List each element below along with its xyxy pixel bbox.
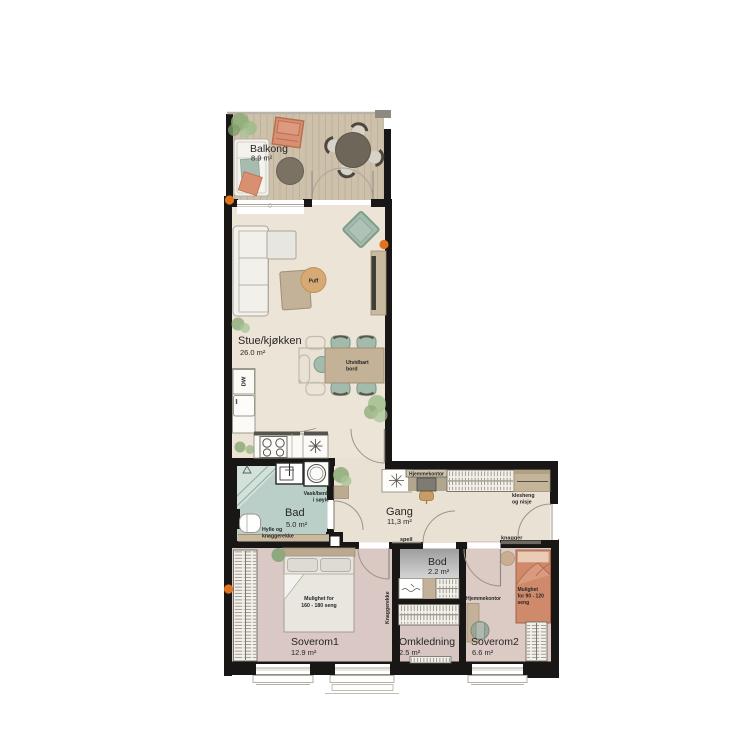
- svg-text:6.6 m²: 6.6 m²: [472, 648, 494, 657]
- svg-text:Mulighet: Mulighet: [518, 587, 539, 593]
- svg-text:5.0 m²: 5.0 m²: [286, 520, 308, 529]
- svg-text:DW: DW: [242, 376, 248, 386]
- svg-text:2.2 m²: 2.2 m²: [428, 567, 450, 576]
- svg-text:Utvidbart: Utvidbart: [346, 360, 369, 366]
- svg-text:bord: bord: [346, 367, 358, 373]
- svg-text:Knaggerekke: Knaggerekke: [385, 591, 391, 624]
- svg-text:Bad: Bad: [285, 507, 305, 519]
- svg-text:Puff: Puff: [309, 279, 319, 285]
- svg-text:for 90 - 120: for 90 - 120: [518, 594, 545, 600]
- svg-text:seng: seng: [518, 600, 530, 606]
- svg-text:160 - 180 seng: 160 - 180 seng: [301, 603, 336, 609]
- svg-text:Hylle og: Hylle og: [262, 527, 282, 533]
- svg-text:og nisje: og nisje: [512, 500, 532, 506]
- svg-text:speil: speil: [400, 537, 413, 543]
- svg-text:Stue/kjøkken: Stue/kjøkken: [238, 335, 302, 347]
- svg-text:knaggerekke: knaggerekke: [262, 534, 294, 540]
- svg-text:Hjemmekontor: Hjemmekontor: [409, 472, 444, 478]
- svg-text:12.9 m²: 12.9 m²: [291, 648, 317, 657]
- svg-text:klesheng: klesheng: [512, 493, 535, 499]
- svg-text:i søyle: i søyle: [313, 498, 329, 504]
- svg-text:Soverom1: Soverom1: [291, 636, 339, 648]
- svg-text:Vask/benk: Vask/benk: [304, 491, 329, 497]
- svg-text:2.5 m²: 2.5 m²: [399, 648, 421, 657]
- svg-text:11,3 m²: 11,3 m²: [387, 517, 412, 526]
- svg-text:26.0 m²: 26.0 m²: [240, 348, 266, 357]
- svg-text:Hjemmekontor: Hjemmekontor: [466, 596, 501, 602]
- svg-text:8.9 m²: 8.9 m²: [251, 154, 273, 163]
- svg-text:Omkledning: Omkledning: [399, 636, 455, 648]
- svg-text:knagger: knagger: [501, 536, 523, 542]
- svg-text:Soverom2: Soverom2: [471, 636, 519, 648]
- svg-text:Mulighet for: Mulighet for: [304, 596, 334, 602]
